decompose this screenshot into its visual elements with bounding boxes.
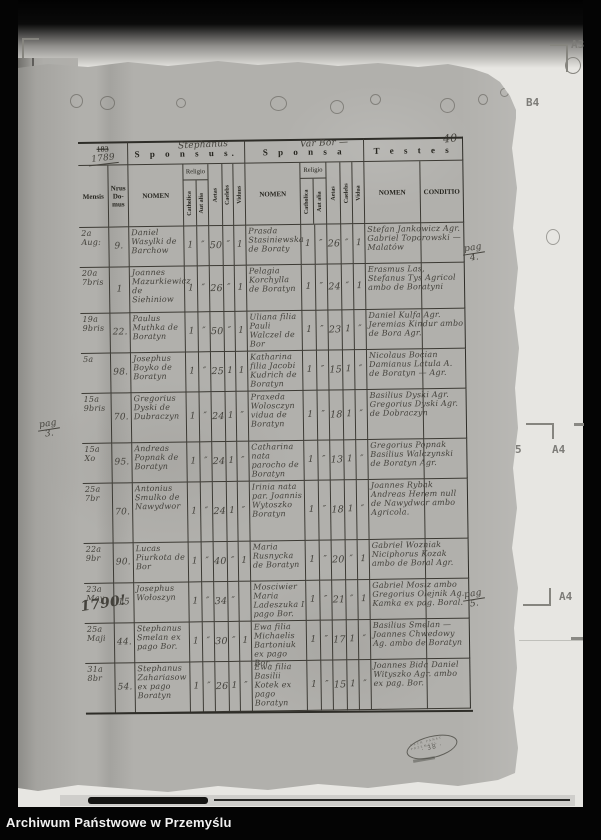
year-cell: 183 1789 — [78, 141, 128, 166]
cell-sponsus-caelebs: 1 — [227, 482, 239, 542]
cell-testes-nomen: Nicolaus Bocian Damianus Latula A. de Bo… — [367, 349, 424, 390]
circle-doodle — [478, 94, 488, 105]
circle-doodle — [70, 94, 83, 108]
cell-nrus-domus: 98. — [111, 353, 132, 393]
cell-sponsus-viduus: ″ — [240, 662, 253, 712]
cell-sponsus-viduus — [239, 582, 252, 622]
cell-sponsus-aetas: 50 — [210, 312, 225, 352]
cell-nrus-domus: 44. — [115, 623, 136, 663]
cell-sponsus-nomen: Joannes Mazurkiewicz de Siehiniow — [130, 267, 186, 314]
cell-sponsus-aut-alia: ″ — [200, 442, 213, 482]
testes-text: Nicolaus Bocian Damianus Latula A. de Bo… — [369, 350, 464, 378]
cell-sponsa-aetas: 15 — [329, 350, 344, 390]
film-strip-mark — [88, 797, 208, 804]
cell-sponsa-catholica: 1 — [307, 661, 322, 711]
cell-nrus-domus: 95. — [112, 443, 133, 483]
cell-sponsus-catholica: 1 — [187, 392, 201, 442]
cell-sponsa-caelebs: ″ — [342, 264, 355, 310]
cell-sponsa-nomen: Catharina nata parocho de Boratyn — [249, 441, 305, 482]
testes-text: Joannes Bida Daniel Wityszko Agr. ambo e… — [373, 660, 468, 688]
cell-sponsus-caelebs: 1 — [229, 662, 241, 712]
testes-text: Gabriel Mosiz ambo Gregorius Olejnik Ag.… — [372, 580, 467, 608]
cell-sponsa-catholica: 1 — [303, 351, 318, 391]
circle-doodle — [270, 96, 287, 111]
cell-sponsus-nomen: Andreas Popnak de Boratyn — [132, 443, 188, 484]
cell-mensis: 23a May1790! — [84, 584, 115, 624]
film-strip-line — [214, 799, 570, 801]
col-caelebs-sponsa: Caelebs — [340, 162, 353, 224]
cell-sponsus-nomen: Gregorius Dyski de Dubraczyn — [132, 393, 188, 444]
cell-sponsus-nomen: Antonius Smulko de Nawydwor — [133, 483, 189, 544]
cell-nrus-domus: 1 — [110, 267, 131, 313]
table-row: 25a Maji 44. Stephanus Smelan ex pago Bo… — [85, 619, 473, 664]
cell-sponsus-aut-alia: ″ — [202, 542, 215, 582]
cell-sponsus-aetas: 24 — [212, 392, 227, 442]
cell-sponsus-caelebs: 1 — [226, 392, 238, 442]
cell-nrus-domus: 90. — [114, 543, 135, 583]
col-testes-nomen: NOMEN — [364, 161, 421, 224]
cell-sponsa-aetas: 18 — [329, 390, 344, 440]
cell-sponsa-nomen: Pelagia Korchylla de Boratyn — [247, 265, 303, 312]
table-row: 2a Aug: 9. Daniel Wasylki de Barchow 1 ″… — [79, 223, 467, 268]
cell-sponsus-nomen: Paulus Muthka de Boratyn — [130, 313, 186, 354]
circle-doodle — [330, 100, 344, 114]
cell-sponsa-aut-alia: ″ — [319, 481, 332, 541]
cell-sponsus-aut-alia: ″ — [201, 482, 214, 542]
cell-testes-nomen: Gregorius Popnak Basilius Walczynski de … — [368, 439, 425, 480]
col-nrus-domus: Nrus Do- mus — [108, 165, 129, 227]
cell-sponsa-caelebs: 1 — [344, 440, 357, 480]
cell-sponsus-catholica: 1 — [189, 542, 203, 582]
col-catholica: Catholica — [184, 180, 197, 225]
circle-doodle — [176, 98, 186, 108]
cell-sponsus-catholica: 1 — [190, 662, 204, 712]
mark-label-a3: A3 — [571, 38, 584, 51]
testes-text: Gregorius Popnak Basilius Walczynski de … — [370, 440, 465, 468]
cell-sponsa-aetas: 21 — [332, 580, 347, 620]
cell-sponsus-aut-alia: ″ — [200, 392, 213, 442]
cell-nrus-domus: 9. — [109, 227, 130, 267]
table-row: 15a 9bris 70. Gregorius Dyski de Dubracz… — [82, 389, 470, 444]
cell-sponsa-catholica: 1 — [307, 621, 322, 661]
cell-sponsa-aut-alia: ″ — [315, 225, 328, 265]
cell-testes-nomen: Gabriel Mosiz ambo Gregorius Olejnik Ag.… — [370, 579, 427, 620]
cell-mensis: 15a Xo — [82, 444, 113, 484]
cell-sponsus-nomen: Josephus Wołoszyn — [134, 582, 190, 623]
col-aetas-sponsa: Aetas — [326, 162, 341, 224]
cell-sponsa-nomen: Mosciwier Maria Ladeszuka I pago Bor. — [251, 581, 307, 622]
cell-sponsus-caelebs: ″ — [229, 622, 241, 662]
cell-sponsus-catholica: 1 — [190, 622, 204, 662]
table-subheader: Mensis Nrus Do- mus NOMEN Religio Cathol… — [78, 161, 466, 228]
cell-nrus-domus: 22. — [110, 313, 131, 353]
cell-sponsa-nomen: Uliana filia Pauli Walczel de Bor — [247, 311, 303, 352]
cell-sponsus-viduus: ″ — [237, 392, 250, 442]
cell-sponsa-aetas: 26 — [327, 224, 342, 264]
col-mensis: Mensis — [78, 166, 109, 228]
cell-sponsa-aut-alia: ″ — [321, 660, 334, 710]
cell-sponsa-aetas: 15 — [333, 660, 348, 710]
table-row: 22a 9br 90. Lucas Piurkota de Bor 1 ″ 40… — [84, 539, 472, 584]
cell-sponsa-aut-alia: ″ — [318, 441, 331, 481]
cell-sponsus-aut-alia: ″ — [202, 582, 215, 622]
cell-sponsa-catholica: 1 — [306, 541, 321, 581]
mark-label-a4-lower: A4 — [559, 590, 572, 603]
cell-sponsa-nomen: Ewa filia Michaelis Bartoniuk ex pago Bo… — [252, 621, 308, 662]
testes-text: Basilius Dyski Agr. Gregorius Dyski Agr.… — [370, 390, 465, 418]
cell-sponsa-nomen: Praxeda Wolosczyn vidua de Boratyn — [249, 391, 305, 442]
cell-sponsus-viduus: 1 — [235, 312, 248, 352]
col-aetas-sponsus: Aetas — [208, 164, 223, 226]
cell-mensis: 15a 9bris — [82, 394, 113, 444]
register-page: 40 183 1789 S p o n s u s. S p o n s a T… — [18, 58, 519, 794]
col-aut-alia: Aut alia — [196, 180, 208, 225]
year-printed: 183 — [78, 144, 127, 154]
cell-sponsa-caelebs: 1 — [343, 350, 356, 390]
table-row: 31a 8br 54. Stephanus Zahariasow ex pago… — [85, 659, 473, 714]
cell-sponsa-caelebs: 1 — [343, 390, 356, 440]
testes-text: Daniel Kulfa Agr. Jeremias Kindur ambo d… — [368, 310, 463, 338]
cell-testes-nomen: Daniel Kulfa Agr. Jeremias Kindur ambo d… — [366, 309, 423, 350]
cell-sponsa-nomen: Ewa filia Basilii Kotek ex pago Boratyn — [252, 661, 308, 712]
circle-doodle — [440, 98, 455, 113]
cell-sponsa-vidua: 1 — [358, 580, 371, 620]
table-row: 19a 9bris 22. Paulus Muthka de Boratyn 1… — [80, 309, 468, 354]
cell-sponsa-caelebs: 1 — [345, 480, 358, 540]
col-caelebs-sponsus: Caelebs — [222, 164, 234, 226]
cell-sponsus-aetas: 26 — [215, 662, 230, 712]
cell-mensis: 31a 8br — [85, 664, 116, 714]
edge-tick-upper — [574, 423, 584, 426]
cell-mensis: 20a 7bris — [80, 268, 111, 314]
table-row: 5a 98. Josephus Boyko de Boratyn 1 ″ 25 … — [81, 349, 469, 394]
cell-sponsa-catholica: 1 — [305, 481, 320, 541]
registration-circle — [565, 57, 581, 74]
cell-sponsa-caelebs: 1 — [347, 660, 360, 710]
cell-sponsa-aut-alia: ″ — [320, 580, 333, 620]
cell-sponsa-catholica: 1 — [306, 581, 321, 621]
cell-sponsus-aetas: 25 — [211, 352, 226, 392]
margin-note-pag4: pag 4. — [462, 242, 486, 264]
cell-sponsus-catholica: 1 — [186, 352, 200, 392]
testes-text: Stefan Jankowicz Agr. Gabriel Toporowski… — [367, 224, 462, 252]
cell-sponsa-caelebs: ″ — [341, 224, 354, 264]
mark-label-b4: B4 — [526, 96, 539, 109]
cell-sponsus-caelebs: 1 — [226, 442, 238, 482]
cell-sponsus-aetas: 30 — [215, 622, 230, 662]
cell-sponsa-aut-alia: ″ — [316, 311, 329, 351]
cell-testes-nomen: Basilius Dyski Agr. Gregorius Dyski Agr.… — [367, 389, 424, 440]
cell-sponsa-catholica: 1 — [304, 441, 319, 481]
testes-text: Basilius Smelan — Joannes Chwedowy Ag. a… — [373, 620, 468, 648]
mark-label-5: 5 — [515, 443, 522, 456]
cell-sponsus-aetas: 26 — [210, 266, 225, 312]
table-row: 23a May1790! 15 Josephus Wołoszyn 1 ″ 34… — [84, 579, 472, 624]
circle-doodle — [370, 94, 381, 105]
cell-sponsus-catholica: 1 — [188, 482, 202, 542]
cell-sponsa-aetas: 13 — [330, 440, 345, 480]
cell-sponsa-aut-alia: ″ — [316, 265, 329, 311]
cell-sponsus-aut-alia: ″ — [199, 352, 212, 392]
cell-sponsus-caelebs: ″ — [223, 226, 235, 266]
cell-sponsus-aut-alia: ″ — [203, 622, 216, 662]
cell-nrus-domus: 54. — [115, 663, 136, 713]
circle-doodle — [100, 96, 115, 110]
circle-doodle-margin — [546, 229, 560, 245]
cell-sponsus-viduus: 1 — [234, 226, 247, 266]
cell-mensis: 2a Aug: — [79, 228, 110, 268]
cell-sponsa-caelebs: ″ — [346, 580, 359, 620]
marriage-register-table: 183 1789 S p o n s u s. S p o n s a T e … — [78, 137, 473, 716]
cell-sponsus-nomen: Daniel Wasylki de Barchow — [129, 227, 185, 268]
cell-sponsus-catholica: 1 — [185, 266, 199, 312]
col-conditio: CONDITIO — [420, 161, 464, 224]
cell-sponsa-aut-alia: ″ — [321, 620, 334, 660]
mark-label-a4-upper: A4 — [552, 443, 565, 456]
cell-testes-nomen: Gabriel Wozniak Niciphorus Kozak ambo de… — [370, 539, 427, 580]
cell-sponsa-catholica: 1 — [302, 265, 317, 311]
cell-mensis: 5a — [81, 354, 112, 394]
cell-sponsus-aetas: 50 — [209, 226, 224, 266]
cell-sponsa-caelebs: 1 — [347, 620, 360, 660]
cell-sponsus-caelebs: ″ — [224, 312, 236, 352]
cell-sponsa-vidua: ″ — [359, 660, 372, 710]
cell-sponsa-catholica: 1 — [302, 311, 317, 351]
cell-sponsus-viduus: ″ — [238, 482, 251, 542]
cell-sponsa-aetas: 23 — [328, 310, 343, 350]
cell-sponsus-viduus: 1 — [236, 352, 249, 392]
table-row: 25a 7br 70. Antonius Smulko de Nawydwor … — [83, 479, 471, 544]
cell-sponsus-catholica: 1 — [184, 226, 198, 266]
registration-corner-lower-right — [523, 588, 551, 606]
cell-sponsa-vidua: ″ — [357, 480, 370, 540]
cell-sponsus-caelebs: 1 — [225, 352, 237, 392]
film-top-fade — [18, 0, 583, 70]
cell-sponsus-aetas: 24 — [212, 442, 227, 482]
col-sponsa-nomen: NOMEN — [245, 163, 301, 226]
col-aut-alia-sponsa: Aut alia — [314, 179, 327, 224]
cell-sponsus-aetas: 40 — [214, 542, 229, 582]
cell-sponsa-aut-alia: ″ — [317, 391, 330, 441]
col-vidua: Vidua — [352, 162, 365, 224]
table-row: 20a 7bris 1 Joannes Mazurkiewicz de Sieh… — [80, 263, 468, 314]
year-handwritten: 1789 — [87, 152, 118, 166]
sponsus-religio-group: Religio Catholica Aut alia — [183, 164, 209, 226]
col-catholica-sponsa: Catholica — [301, 179, 315, 224]
cell-testes-nomen: Joannes Rybak Andreas Herem null de Nawy… — [369, 479, 426, 540]
cell-sponsa-nomen: Katharina filia Jacobi Kudrich de Boraty… — [248, 351, 304, 392]
cell-sponsa-aetas: 24 — [328, 264, 343, 310]
cell-mensis: 22a 9br — [84, 544, 115, 584]
cell-sponsa-caelebs: ″ — [346, 540, 359, 580]
cell-testes-nomen: Basilius Smelan — Joannes Chwedowy Ag. a… — [371, 619, 428, 660]
cell-sponsus-aetas: 24 — [213, 482, 228, 542]
testes-text: Gabriel Wozniak Niciphorus Kozak ambo de… — [372, 540, 467, 568]
cell-testes-nomen: Stefan Jankowicz Agr. Gabriel Toporowski… — [365, 223, 422, 264]
cell-sponsa-catholica: 1 — [301, 225, 316, 265]
cell-sponsus-catholica: 1 — [189, 582, 203, 622]
testes-text: Erasmus Las, Stefanus Tys Agricol ambo d… — [368, 264, 463, 292]
cell-sponsus-aut-alia: ″ — [203, 662, 216, 712]
cell-sponsa-vidua: 1 — [353, 224, 366, 264]
col-religio: Religio — [183, 164, 207, 180]
cell-mensis: 19a 9bris — [80, 314, 111, 354]
cell-sponsus-catholica: 1 — [187, 442, 201, 482]
sponsa-religio-group: Religio Catholica Aut alia — [300, 163, 327, 225]
cell-sponsus-nomen: Stephanus Zahariasow ex pago Boratyn — [135, 662, 191, 713]
col-sponsus-nomen: NOMEN — [128, 165, 184, 228]
cell-sponsa-vidua: ″ — [356, 440, 369, 480]
cell-sponsus-caelebs: ″ — [224, 266, 236, 312]
cell-sponsa-catholica: 1 — [303, 391, 318, 441]
film-scratch-line — [519, 640, 583, 641]
testes-text: Joannes Rybak Andreas Herem null de Nawy… — [371, 480, 466, 517]
cell-sponsus-viduus: 1 — [235, 266, 248, 312]
registration-corner-mid-right — [526, 423, 554, 439]
archive-caption: Archiwum Państwowe w Przemyślu — [6, 815, 232, 830]
cell-sponsus-viduus: 1 — [239, 542, 252, 582]
cell-sponsus-caelebs: ″ — [228, 582, 240, 622]
cell-sponsa-vidua: ″ — [355, 390, 368, 440]
table-rows: 2a Aug: 9. Daniel Wasylki de Barchow 1 ″… — [79, 223, 473, 714]
cell-sponsa-vidua: 1 — [354, 264, 367, 310]
cell-sponsa-nomen: Irinia nata par. Joannis Wytoszko Boraty… — [250, 481, 306, 542]
cell-sponsa-aut-alia: ″ — [320, 540, 333, 580]
cell-sponsus-viduus: ″ — [237, 442, 250, 482]
cell-sponsa-aetas: 20 — [332, 540, 347, 580]
cell-sponsus-viduus: 1 — [240, 622, 253, 662]
cell-sponsus-aut-alia: ″ — [198, 312, 211, 352]
margin-note-pag5: pag 5. — [462, 588, 486, 610]
cell-sponsa-vidua: ″ — [359, 620, 372, 660]
cell-sponsa-caelebs: 1 — [342, 310, 355, 350]
cell-sponsus-nomen: Stephanus Smelan ex pago Bor. — [135, 622, 191, 663]
cell-sponsa-vidua: ″ — [355, 350, 368, 390]
cell-sponsus-caelebs: ″ — [228, 542, 240, 582]
section-testes: T e s t e s — [364, 137, 463, 162]
cell-sponsa-aetas: 17 — [333, 620, 348, 660]
cell-sponsa-aut-alia: ″ — [317, 351, 330, 391]
col-viduus: Viduus — [233, 164, 246, 226]
margin-note-pag3: pag 3. — [37, 418, 61, 440]
cell-sponsa-vidua: 1 — [358, 540, 371, 580]
cell-sponsa-vidua: ″ — [354, 310, 367, 350]
cell-testes-nomen: Joannes Bida Daniel Wityszko Agr. ambo e… — [371, 659, 428, 710]
cell-sponsa-nomen: Prasda Stasiniewska de Boraty — [246, 225, 302, 266]
cell-sponsa-nomen: Maria Rusnycka de Boratyn — [251, 541, 307, 582]
cell-sponsus-aut-alia: ″ — [198, 266, 211, 312]
cell-nrus-domus: 70. — [112, 393, 133, 443]
cell-mensis: 25a 7br — [83, 484, 114, 544]
cell-sponsus-aut-alia: ″ — [197, 226, 210, 266]
cell-sponsus-nomen: Josephus Boyko de Boratyn — [131, 353, 187, 394]
cell-sponsus-aetas: 34 — [214, 582, 229, 622]
cell-testes-nomen: Erasmus Las, Stefanus Tys Agricol ambo d… — [366, 263, 423, 310]
cell-nrus-domus: 70. — [113, 483, 134, 543]
cell-mensis: 25a Maji — [85, 624, 116, 664]
cell-sponsa-aetas: 18 — [331, 480, 346, 540]
cell-sponsus-nomen: Lucas Piurkota de Bor — [134, 542, 190, 583]
cell-sponsus-catholica: 1 — [185, 312, 199, 352]
col-religio-sponsa: Religio — [300, 163, 325, 179]
table-row: 15a Xo 95. Andreas Popnak de Boratyn 1 ″… — [82, 439, 470, 484]
